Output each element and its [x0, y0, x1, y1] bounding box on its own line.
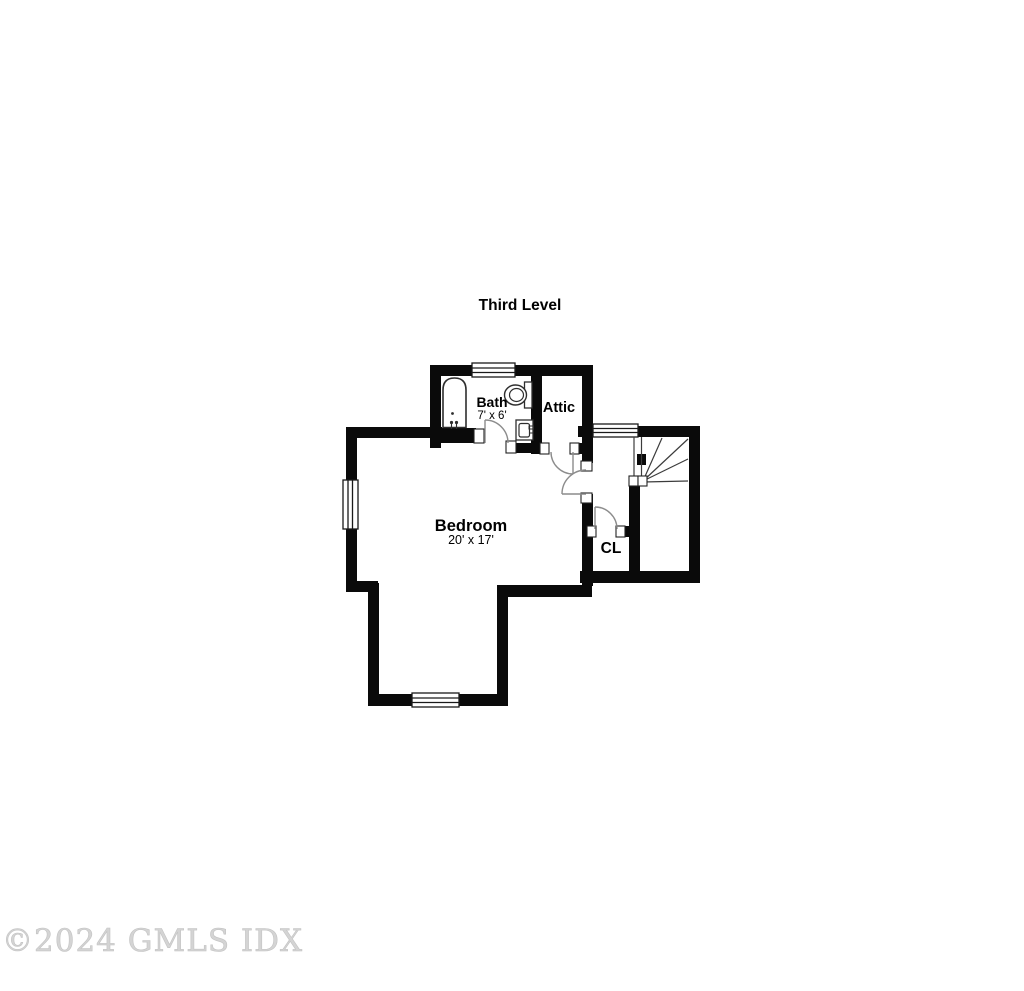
window-bedroom-bottom — [412, 693, 459, 707]
jamb-bath-left — [474, 429, 484, 443]
wall-bedroom-top — [346, 427, 442, 438]
toilet-icon — [505, 382, 533, 408]
sink-icon — [516, 420, 534, 440]
stair-newel-right — [638, 476, 647, 486]
tub-drain — [451, 412, 454, 415]
tub-faucet — [455, 421, 458, 424]
window-bath-top — [472, 363, 515, 377]
jamb-bedroom-top — [581, 461, 592, 471]
jamb-attic-right — [570, 443, 579, 454]
door-attic — [551, 452, 573, 474]
window-bedroom-left — [343, 480, 358, 529]
walls — [346, 365, 700, 706]
room-dims-bath: 7' x 6' — [477, 410, 506, 422]
wall-right-block-bottom — [580, 571, 700, 583]
stair-tread — [643, 459, 688, 481]
wall-under-tub — [441, 428, 476, 443]
room-label-attic: Attic — [543, 400, 575, 416]
watermark: ©2024 GMLS IDX — [2, 926, 303, 957]
wall-dormer-left — [368, 583, 379, 706]
wall-dormer-right — [497, 585, 508, 706]
stair-tread — [643, 439, 688, 481]
wall-attic-bottom-stub — [579, 443, 593, 454]
room-label-bath: Bath — [476, 394, 507, 410]
wall-step-right — [497, 585, 592, 597]
wall-right-block-right — [689, 426, 700, 583]
page-title: Third Level — [479, 297, 562, 314]
tub-faucet — [450, 421, 453, 424]
wall-bath-attic-divider — [531, 375, 542, 454]
wall-stair-divider — [629, 483, 640, 572]
door-bath — [485, 420, 508, 443]
floor-plan-page: Third Level Bath 7' x 6' Attic Bedroom 2… — [0, 0, 1024, 991]
door-bedroom — [562, 470, 586, 494]
floor-plan-drawing: Third Level Bath 7' x 6' Attic Bedroom 2… — [0, 0, 1024, 991]
room-label-closet: CL — [601, 540, 622, 557]
stair-tread — [643, 481, 688, 482]
room-dims-bedroom: 20' x 17' — [448, 533, 494, 547]
window-stair-top — [593, 424, 638, 437]
stair-newel-left — [629, 476, 638, 486]
bathtub-icon — [443, 378, 466, 429]
door-closet — [595, 507, 617, 529]
jamb-attic-left — [540, 443, 549, 454]
